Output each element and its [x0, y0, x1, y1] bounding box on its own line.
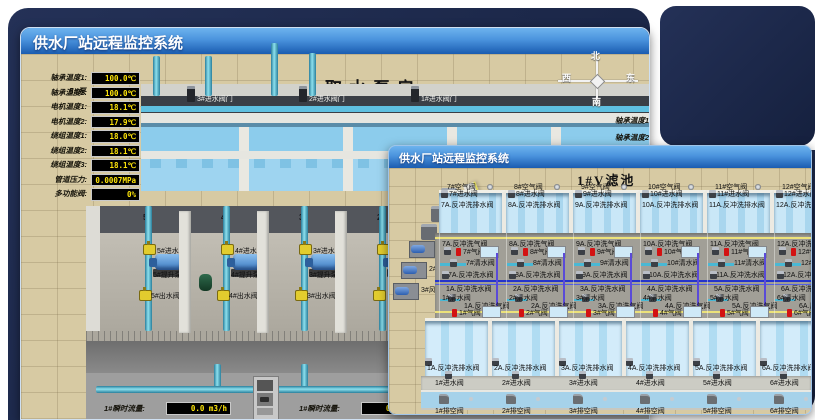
- gas-valve-bot-label: 4#气阀: [660, 310, 682, 317]
- intake-gate-valve[interactable]: 1#进水阀门: [411, 84, 511, 114]
- gate-valve-icon[interactable]: [187, 86, 195, 102]
- green-tank-icon: [199, 274, 212, 291]
- reading-row: 轴承温度1: 100.0℃: [25, 72, 141, 85]
- pump-motor-icon: [149, 258, 157, 267]
- drain-fitting: [425, 390, 492, 406]
- reading-label: 绕组温度2:: [25, 147, 87, 155]
- empty-valve-label: 2#排空阀: [502, 408, 531, 415]
- reading-row: 绕组温度2: 18.1℃: [25, 145, 141, 158]
- drain-valve-bot-label: 5A.反冲洗排水阀: [695, 365, 748, 372]
- reading-row: 电机温度1: 18.1℃: [25, 101, 141, 114]
- drain-port-icon: [603, 397, 607, 401]
- inlet-valve-icon[interactable]: [299, 244, 312, 255]
- empty-valve-label: 4#排空阀: [636, 408, 665, 415]
- inlet-valve-label: 12#进水阀: [784, 191, 812, 198]
- backwash-air-valve-bot-label: 6A.反冲洗气阀: [799, 303, 812, 310]
- clean-water-valve-icon[interactable]: [718, 259, 725, 267]
- valve-icon[interactable]: [442, 271, 449, 279]
- reading-label: 绕组温度1:: [25, 132, 87, 140]
- filter-cell-top: 7#进水阀 7A.反冲洗排水阀: [439, 190, 506, 233]
- reading-value: 18.0℃: [91, 130, 140, 143]
- valve-icon[interactable]: [509, 271, 516, 279]
- lift-pump-icon[interactable]: [155, 254, 181, 270]
- filter-pool-scene: 1#V滤池 1#水泵 2#水泵 3#水泵: [389, 168, 811, 414]
- gas-valve-icon[interactable]: [653, 309, 658, 317]
- blower-cylinder: [395, 287, 409, 295]
- filter-column-gallery: 9A.反冲洗气阀 9#气阀 9#清水阀 9A.反冲洗水阀 3A.反冲洗水阀: [573, 233, 641, 318]
- drain-fitting: [760, 390, 812, 406]
- gas-valve-bot-label: 6#气阀: [794, 310, 812, 317]
- elbow-pipe-icon[interactable]: [439, 394, 449, 404]
- backwash-water-valve-label: 12A.反冲洗水阀: [783, 272, 812, 279]
- lift-pump-label: 5#提升泵: [153, 272, 182, 279]
- filter-cell-bottom: 5A.反冲洗排水阀: [693, 318, 760, 376]
- drain-fitting: [492, 390, 559, 406]
- pump-room-left-wall: [86, 206, 100, 336]
- elbow-pipe-icon[interactable]: [707, 394, 717, 404]
- empty-valve[interactable]: 4#排空阀: [626, 408, 693, 415]
- drain-valve-label: 10A.反冲洗排水阀: [642, 202, 698, 209]
- inlet-valve-icon[interactable]: [579, 371, 586, 379]
- compass-north: 北: [591, 52, 600, 61]
- filter-cell-top: 11#进水阀 11A.反冲洗排水阀: [707, 190, 774, 233]
- drain-valve-label: 11A.反冲洗排水阀: [709, 202, 765, 209]
- inlet-valve-icon[interactable]: [441, 190, 448, 198]
- flow-value: 0.0 m3/h: [166, 402, 231, 415]
- valve-icon[interactable]: [511, 247, 518, 255]
- bottom-inlet: 5#进水阀: [693, 376, 760, 390]
- reading-label: 绕组温度3:: [25, 161, 87, 169]
- filter-cell-bottom: 6A.反冲洗排水阀: [760, 318, 812, 376]
- backwash-water-valve-bot-label: 3A.反冲洗水阀: [580, 286, 626, 293]
- cabinet-base: [257, 408, 273, 415]
- inlet-valve-bot-label: 5#进水阀: [703, 380, 732, 387]
- inlet-valve-icon[interactable]: [780, 371, 787, 379]
- drain-fitting: [626, 390, 693, 406]
- riser-pipe: [309, 53, 316, 96]
- bottom-inlet: 3#进水阀: [559, 376, 626, 390]
- clean-water-valve-label: 10#清水阀: [667, 260, 700, 267]
- backwash-water-valve-label: 7A.反冲洗水阀: [448, 272, 494, 279]
- reading-value: 100.0℃: [91, 87, 140, 100]
- bay-pipe: [379, 206, 386, 331]
- inlet-valve-label: 8#进水阀: [516, 191, 545, 198]
- gate-valve-label: 1#进水阀门: [421, 96, 457, 103]
- gas-valve-icon[interactable]: [590, 248, 595, 256]
- filter-cell-bottom: 1A.反冲洗排水阀: [425, 318, 492, 376]
- valve-icon[interactable]: [779, 247, 786, 255]
- empty-valve-label: 5#排空阀: [703, 408, 732, 415]
- valve-icon[interactable]: [444, 247, 451, 255]
- inlet-valve-icon[interactable]: [575, 190, 582, 198]
- riser-pipe: [205, 56, 212, 96]
- reading-row: 多功能阀: 0%: [25, 188, 141, 201]
- clean-water-valve-icon[interactable]: [517, 259, 524, 267]
- pump-motor-icon: [227, 258, 235, 267]
- gas-valve-icon[interactable]: [523, 248, 528, 256]
- empty-valve-label: 1#排空阀: [435, 408, 464, 415]
- inlet-valve-label: 5#进水阀: [157, 248, 186, 255]
- clean-water-valve-icon[interactable]: [584, 259, 591, 267]
- reading-label: 电机温度1:: [25, 103, 87, 111]
- inlet-valve-icon[interactable]: [713, 371, 720, 379]
- gas-valve-icon[interactable]: [586, 309, 591, 317]
- clean-water-valve-bot-label: 3#清水阀: [576, 295, 605, 302]
- drain-port-icon: [670, 397, 674, 401]
- gas-valve-bot-label: 5#气阀: [727, 310, 749, 317]
- inlet-valve-bot-label: 2#进水阀: [502, 380, 531, 387]
- gas-valve-bot-label: 3#气阀: [593, 310, 615, 317]
- backwash-water-valve-label: 9A.反冲洗水阀: [582, 272, 628, 279]
- pipe-gallery: 7A.反冲洗气阀 7#气阀 7#清水阀 7A.反冲洗水阀 1A.反冲洗水阀: [435, 233, 811, 318]
- inlet-valve-bot-label: 3#进水阀: [569, 380, 598, 387]
- compass-west: 西: [562, 74, 571, 83]
- drain-valve-label: 8A.反冲洗排水阀: [508, 202, 561, 209]
- empty-valve[interactable]: 5#排空阀: [693, 408, 760, 415]
- reading-row: 绕组温度1: 18.0℃: [25, 130, 141, 143]
- drain-valve-bot-label: 4A.反冲洗排水阀: [628, 365, 681, 372]
- inlet-valve-icon[interactable]: [709, 190, 716, 198]
- clean-water-valve-label: 11#清水阀: [734, 260, 766, 267]
- filter-cell-bottom: 2A.反冲洗排水阀: [492, 318, 559, 376]
- filter-pool-block: 7#空气阀 8#空气阀 9#空气阀 10#空气阀: [435, 184, 811, 415]
- clean-water-valve-label: 7#清水阀: [466, 260, 495, 267]
- backwash-water-valve-bot-label: 2A.反冲洗水阀: [513, 286, 559, 293]
- inlet-valve-icon[interactable]: [646, 371, 653, 379]
- bottom-inlet: 2#进水阀: [492, 376, 559, 390]
- valve-icon[interactable]: [645, 247, 652, 255]
- drain-valve-bot-label: 1A.反冲洗排水阀: [427, 365, 480, 372]
- filter-cell-top: 12#进水阀 12A.反冲洗排水阀: [774, 190, 812, 233]
- drain-port-icon: [469, 397, 473, 401]
- gas-valve-icon[interactable]: [720, 309, 725, 317]
- blower-cylinder: [411, 245, 425, 253]
- drain-valve-bot-label: 2A.反冲洗排水阀: [494, 365, 547, 372]
- empty-valve[interactable]: 2#排空阀: [492, 408, 559, 415]
- discharge-stub-pipe: [214, 364, 221, 388]
- flow-meter-cabinet: [253, 376, 279, 420]
- filter-column-gallery: 12A.反冲洗气阀 12#气阀 12#清水阀 12A.反冲洗水阀 6A.反冲洗水…: [774, 233, 812, 318]
- cabinet-panel: [257, 380, 273, 391]
- valve-icon[interactable]: [712, 247, 719, 255]
- bay-pipe: [223, 206, 230, 331]
- drain-valve-bot-label: 6A.反冲洗排水阀: [762, 365, 812, 372]
- bay-pipe: [301, 206, 308, 331]
- trough-icon: [683, 306, 702, 318]
- trough-icon: [750, 306, 769, 318]
- drain-valve-label: 12A.反冲洗排水阀: [776, 202, 812, 209]
- pump-bay: 5# 5#进水阀 5#提升泵 5#出水阀: [109, 206, 187, 336]
- filter-column-gallery: 10A.反冲洗气阀 10#气阀 10#清水阀 10A.反冲洗水阀 4A.反冲洗水…: [640, 233, 708, 318]
- backwash-water-valve-bot-label: 5A.反冲洗水阀: [714, 286, 760, 293]
- compass-center: [590, 74, 606, 90]
- clean-water-valve-label: 12#清水阀: [801, 260, 812, 267]
- gas-valve-icon[interactable]: [657, 248, 662, 256]
- gate-valve-label: 3#进水阀门: [197, 96, 233, 103]
- filter-column-gallery: 8A.反冲洗气阀 8#气阀 8#清水阀 8A.反冲洗水阀 2A.反冲洗水阀: [506, 233, 574, 318]
- flow-label: 1#瞬时流量:: [104, 405, 145, 413]
- lift-pump-icon[interactable]: [311, 254, 337, 270]
- backwash-water-valve-bot-label: 1A.反冲洗水阀: [446, 286, 492, 293]
- reading-label: 多功能阀:: [25, 190, 87, 198]
- filter-cell-top: 8#进水阀 8A.反冲洗排水阀: [506, 190, 573, 233]
- gate-valve-icon[interactable]: [299, 86, 307, 102]
- reading-value: 18.1℃: [91, 159, 140, 172]
- clean-water-valve-label: 8#清水阀: [533, 260, 562, 267]
- reading-row: 绕组温度3: 18.1℃: [25, 159, 141, 172]
- gas-valve-bot-label: 1#气阀: [459, 310, 481, 317]
- bottom-inlet: 1#进水阀: [425, 376, 492, 390]
- drain-valve-label: 7A.反冲洗排水阀: [441, 202, 494, 209]
- inlet-valve-bot-label: 1#进水阀: [435, 380, 464, 387]
- window1-titlebar[interactable]: 供水厂站远程监控系统: [21, 28, 649, 54]
- clean-water-valve-bot-label: 5#清水阀: [710, 295, 739, 302]
- inlet-valve-icon[interactable]: [508, 190, 515, 198]
- camera-body: [260, 397, 269, 402]
- camera-icon: [257, 393, 273, 406]
- inlet-valve-label: 3#进水阀: [313, 248, 342, 255]
- pump-bay: 4# 4#进水阀 4#提升泵 4#出水阀: [187, 206, 265, 336]
- gate-valve-icon[interactable]: [411, 86, 419, 102]
- filter-cell-bottom: 4A.反冲洗排水阀: [626, 318, 693, 376]
- flow-label: 1#瞬时流量:: [299, 405, 340, 413]
- clean-water-valve-bot-label: 4#清水阀: [643, 295, 672, 302]
- gas-valve-icon[interactable]: [519, 309, 524, 317]
- inlet-valve-label: 9#进水阀: [583, 191, 612, 198]
- drain-fitting: [559, 390, 626, 406]
- trough-icon: [616, 306, 635, 318]
- valve-icon[interactable]: [576, 271, 583, 279]
- backwash-water-valve-label: 8A.反冲洗水阀: [515, 272, 561, 279]
- trough-icon: [482, 306, 501, 318]
- lift-pump-label: 4#提升泵: [231, 272, 260, 279]
- bottom-inlet: 6#进水阀: [760, 376, 812, 390]
- empty-valve[interactable]: 1#排空阀: [425, 408, 492, 415]
- backwash-water-valve-label: 11A.反冲洗水阀: [716, 272, 765, 279]
- reading-value: 18.1℃: [91, 101, 140, 114]
- window-filter-pool: 供水厂站远程监控系统 1#V滤池 1#水泵 2#水泵 3#水泵: [388, 145, 812, 415]
- elbow-pipe-icon[interactable]: [506, 394, 516, 404]
- filter-cell-top: 10#进水阀 10A.反冲洗排水阀: [640, 190, 707, 233]
- inlet-valve-bot-label: 6#进水阀: [770, 380, 799, 387]
- pump-motor-icon: [305, 258, 313, 267]
- blower-cylinder: [403, 266, 417, 274]
- valve-icon[interactable]: [710, 271, 717, 279]
- compass-east: 东: [626, 74, 635, 83]
- backwash-water-valve-label: 10A.反冲洗水阀: [649, 272, 698, 279]
- clean-water-valve-icon[interactable]: [450, 259, 457, 267]
- basin-divider: [343, 159, 353, 191]
- valve-icon[interactable]: [578, 247, 585, 255]
- compass-icon: 北 西 南 东: [558, 52, 650, 110]
- empty-valve[interactable]: 6#排空阀: [760, 408, 812, 415]
- gas-valve-icon[interactable]: [791, 248, 796, 256]
- clean-water-valve-bot-label: 2#清水阀: [509, 295, 538, 302]
- outlet-valve-label: 5#出水阀: [151, 293, 180, 300]
- valve-icon[interactable]: [643, 271, 650, 279]
- lift-pump-icon[interactable]: [233, 254, 259, 270]
- riser-pipe: [271, 43, 278, 96]
- sensor-label-fragment: 轴承温度2: [615, 134, 649, 142]
- compass-south: 南: [592, 98, 601, 107]
- backdrop-panel-top-right: [660, 6, 815, 146]
- filter-column-gallery: 11A.反冲洗气阀 11#气阀 11#清水阀 11A.反冲洗水阀 5A.反冲洗水…: [707, 233, 775, 318]
- filter-column-gallery: 7A.反冲洗气阀 7#气阀 7#清水阀 7A.反冲洗水阀 1A.反冲洗水阀: [439, 233, 507, 318]
- window2-titlebar[interactable]: 供水厂站远程监控系统: [389, 146, 811, 168]
- pump-bay: 3# 3#进水阀 3#提升泵 3#出水阀: [265, 206, 343, 336]
- bay-pipe: [145, 206, 152, 331]
- gas-valve-icon[interactable]: [724, 248, 729, 256]
- reading-row: 电机温度2: 17.9℃: [25, 116, 141, 129]
- reading-row: 管道压力: 0.0007MPa: [25, 174, 141, 187]
- reading-label: 轴承温度2:: [25, 89, 87, 97]
- inlet-valve-bot-label: 4#进水阀: [636, 380, 665, 387]
- clean-water-valve-bot-label: 1#清水阀: [442, 295, 471, 302]
- elbow-pipe-icon[interactable]: [573, 394, 583, 404]
- inlet-valve-icon[interactable]: [512, 371, 519, 379]
- gas-valve-icon[interactable]: [456, 248, 461, 256]
- lift-pump-label: 3#提升泵: [309, 272, 338, 279]
- outlet-valve-label: 3#出水阀: [307, 293, 336, 300]
- inlet-valve-label: 4#进水阀: [235, 248, 264, 255]
- filter-cell-bottom: 3A.反冲洗排水阀: [559, 318, 626, 376]
- outlet-valve-icon[interactable]: [373, 290, 386, 301]
- discharge-stub-pipe: [301, 364, 308, 388]
- drain-valve-bot-label: 3A.反冲洗排水阀: [561, 365, 614, 372]
- clean-water-valve-bot-label: 6#清水阀: [777, 295, 806, 302]
- gate-valve-label: 2#进水阀门: [309, 96, 345, 103]
- reading-label: 轴承温度1:: [25, 74, 87, 82]
- inlet-valve-icon[interactable]: [445, 371, 452, 379]
- inlet-valve-label: 10#进水阀: [650, 191, 683, 198]
- reading-value: 0.0007MPa: [91, 174, 140, 187]
- trough-icon: [549, 306, 568, 318]
- drain-valve-label: 9A.反冲洗排水阀: [575, 202, 628, 209]
- gas-valve-icon[interactable]: [787, 309, 792, 317]
- empty-valve-label: 6#排空阀: [770, 408, 799, 415]
- drain-port-icon: [737, 397, 741, 401]
- outlet-valve-label: 4#出水阀: [229, 293, 258, 300]
- reading-value: 100.0℃: [91, 72, 140, 85]
- filter-cell-top: 9#进水阀 9A.反冲洗排水阀: [573, 190, 640, 233]
- clean-water-valve-label: 9#清水阀: [600, 260, 629, 267]
- drain-port-icon: [804, 397, 808, 401]
- inlet-valve-label: 11#进水阀: [717, 191, 749, 198]
- window1-title: 供水厂站远程监控系统: [33, 32, 183, 53]
- drain-fitting: [693, 390, 760, 406]
- backwash-water-valve-bot-label: 6A.反冲洗水阀: [781, 286, 812, 293]
- empty-valve-label: 3#排空阀: [569, 408, 598, 415]
- reading-value: 0%: [91, 188, 140, 201]
- backwash-water-valve-bot-label: 4A.反冲洗水阀: [647, 286, 693, 293]
- gas-valve-label: 12#气阀: [798, 249, 812, 256]
- empty-valve[interactable]: 3#排空阀: [559, 408, 626, 415]
- reading-row: 轴承温度2: 100.0℃: [25, 87, 141, 100]
- gas-valve-icon[interactable]: [452, 309, 457, 317]
- inlet-valve-icon[interactable]: [221, 244, 234, 255]
- elbow-pipe-icon[interactable]: [774, 394, 784, 404]
- clean-water-valve-icon[interactable]: [785, 259, 792, 267]
- bottom-inlet: 4#进水阀: [626, 376, 693, 390]
- clean-water-valve-icon[interactable]: [651, 259, 658, 267]
- gas-valve-bot-label: 2#气阀: [526, 310, 548, 317]
- window2-title: 供水厂站远程监控系统: [399, 150, 509, 166]
- drain-port-icon: [536, 397, 540, 401]
- reading-value: 17.9℃: [91, 116, 140, 129]
- reading-label: 电机温度2:: [25, 118, 87, 126]
- valve-icon[interactable]: [777, 271, 784, 279]
- inlet-valve-icon[interactable]: [642, 190, 649, 198]
- elbow-pipe-icon[interactable]: [640, 394, 650, 404]
- inlet-valve-label: 7#进水阀: [449, 191, 478, 198]
- basin-divider: [239, 159, 249, 191]
- inlet-valve-icon[interactable]: [776, 190, 783, 198]
- riser-pipe: [153, 56, 160, 96]
- inlet-valve-icon[interactable]: [143, 244, 156, 255]
- reading-label: 管道压力:: [25, 176, 87, 184]
- sensor-label-fragment: 轴承温度1: [615, 117, 649, 125]
- reading-value: 18.1℃: [91, 145, 140, 158]
